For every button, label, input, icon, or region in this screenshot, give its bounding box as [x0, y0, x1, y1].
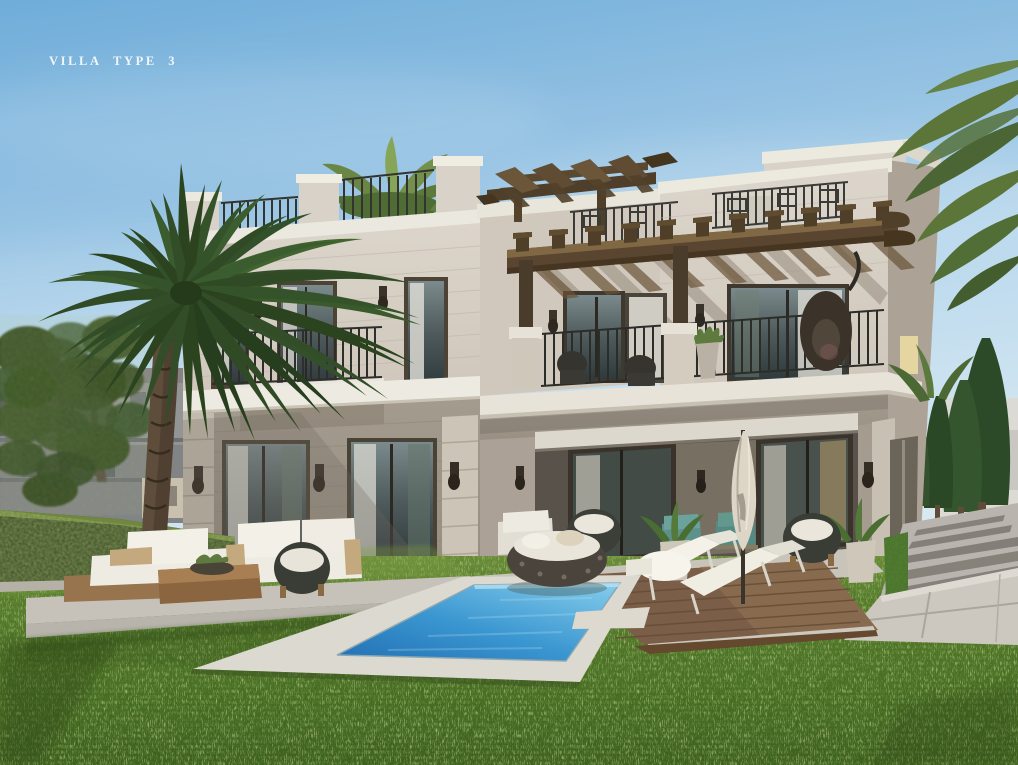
svg-text:VILLA TYPE 3: VILLA TYPE 3 — [49, 54, 177, 68]
